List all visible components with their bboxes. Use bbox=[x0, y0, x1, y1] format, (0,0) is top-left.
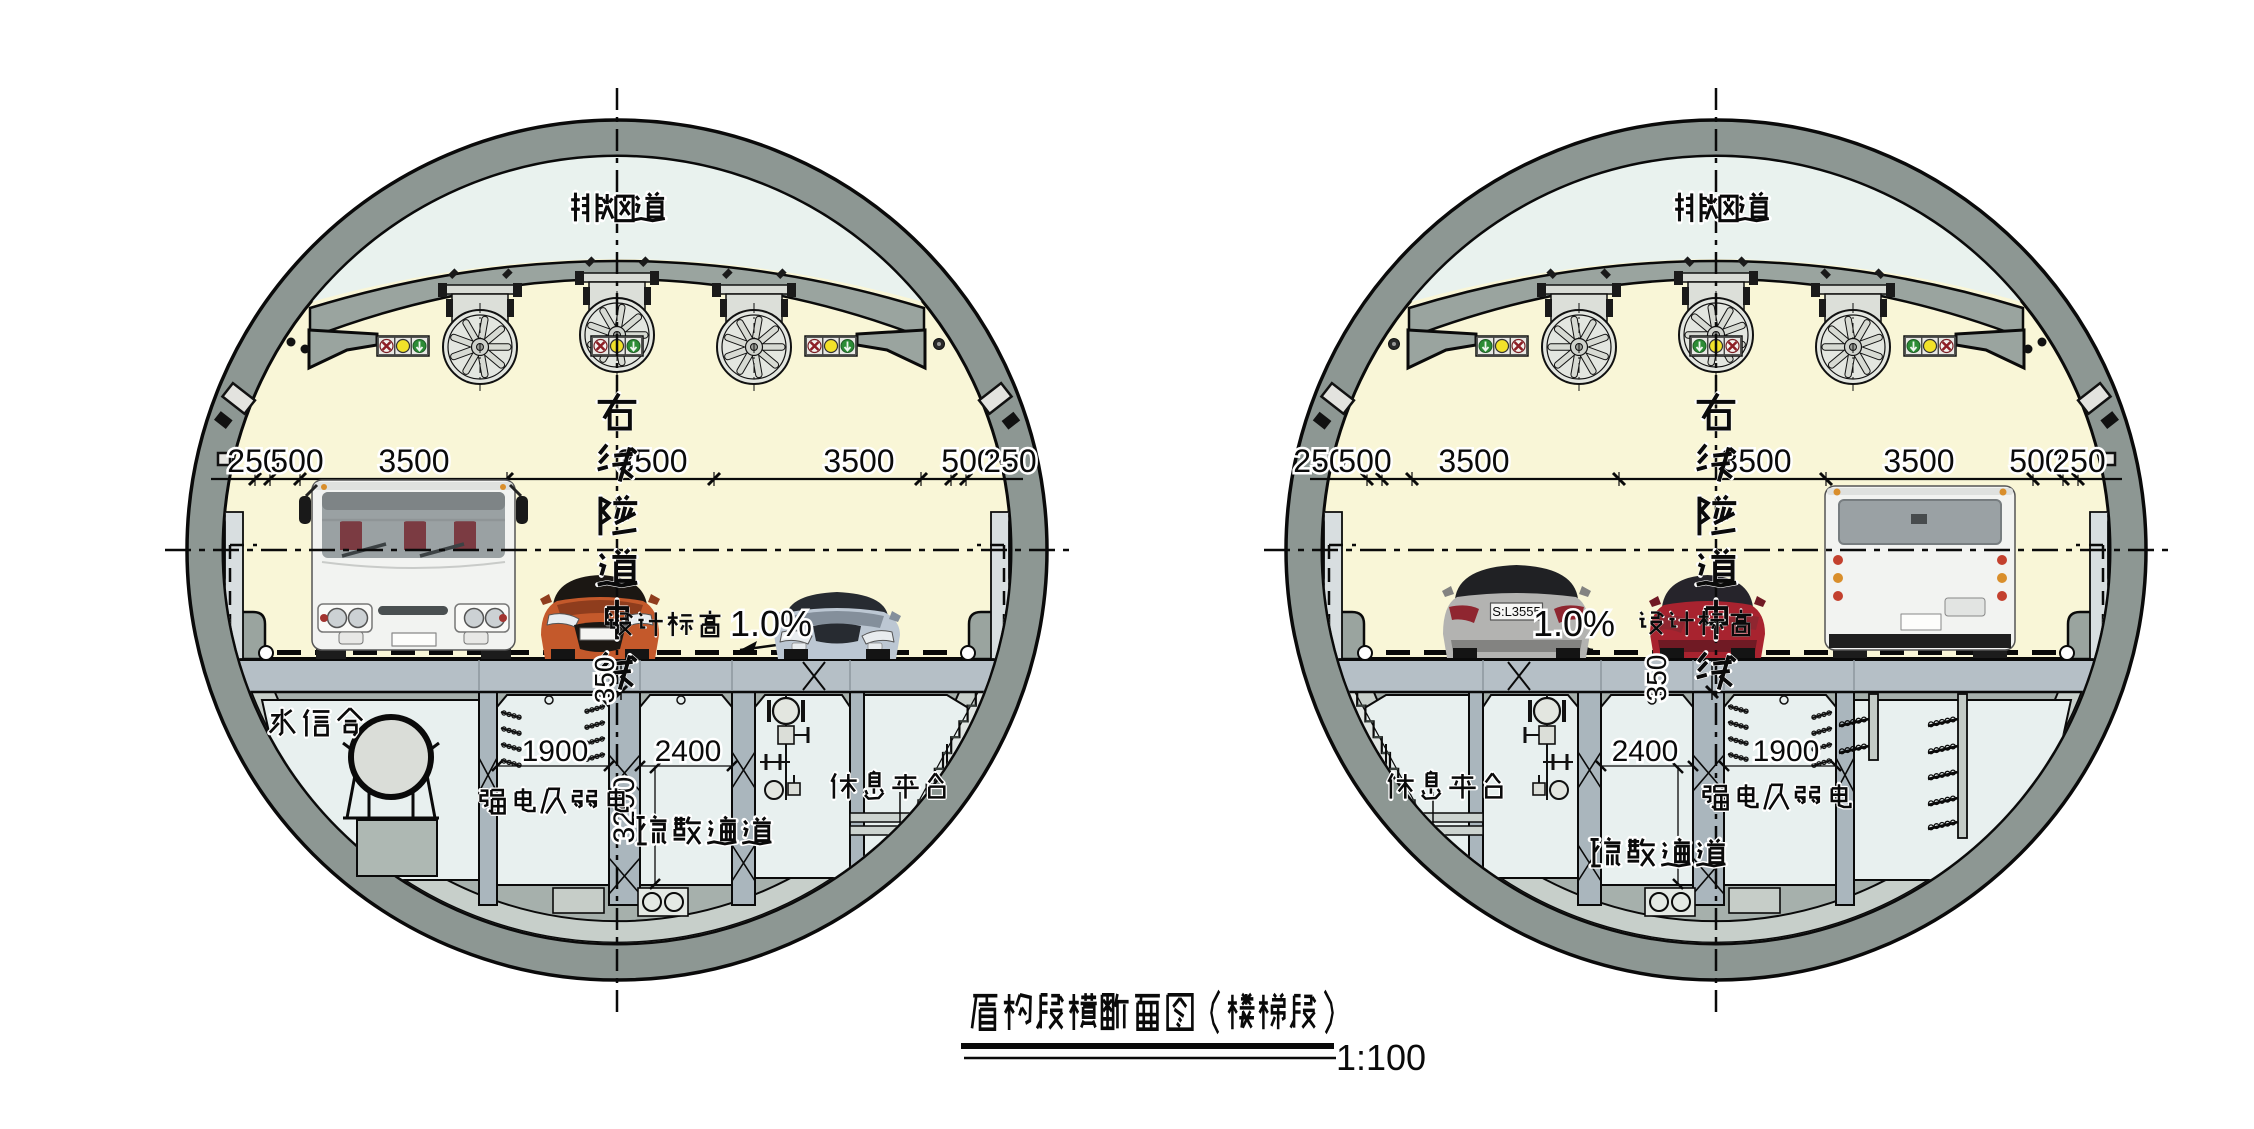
svg-text:2400: 2400 bbox=[655, 735, 722, 768]
svg-text:500: 500 bbox=[1338, 443, 1391, 479]
svg-text:1.0%: 1.0% bbox=[1533, 603, 1615, 644]
svg-text:1:100: 1:100 bbox=[1336, 1037, 1426, 1078]
svg-text:3500: 3500 bbox=[823, 443, 894, 479]
svg-text:350: 350 bbox=[1641, 655, 1672, 702]
svg-text:1900: 1900 bbox=[1753, 735, 1820, 768]
svg-text:500: 500 bbox=[270, 443, 323, 479]
svg-text:3500: 3500 bbox=[1438, 443, 1509, 479]
svg-text:250: 250 bbox=[983, 443, 1036, 479]
svg-text:3500: 3500 bbox=[378, 443, 449, 479]
svg-text:3500: 3500 bbox=[1883, 443, 1954, 479]
svg-text:350: 350 bbox=[589, 657, 620, 704]
svg-text:2400: 2400 bbox=[1612, 735, 1679, 768]
svg-text:250: 250 bbox=[2052, 443, 2105, 479]
svg-text:1.0%: 1.0% bbox=[730, 603, 812, 644]
svg-text:1900: 1900 bbox=[522, 735, 589, 768]
